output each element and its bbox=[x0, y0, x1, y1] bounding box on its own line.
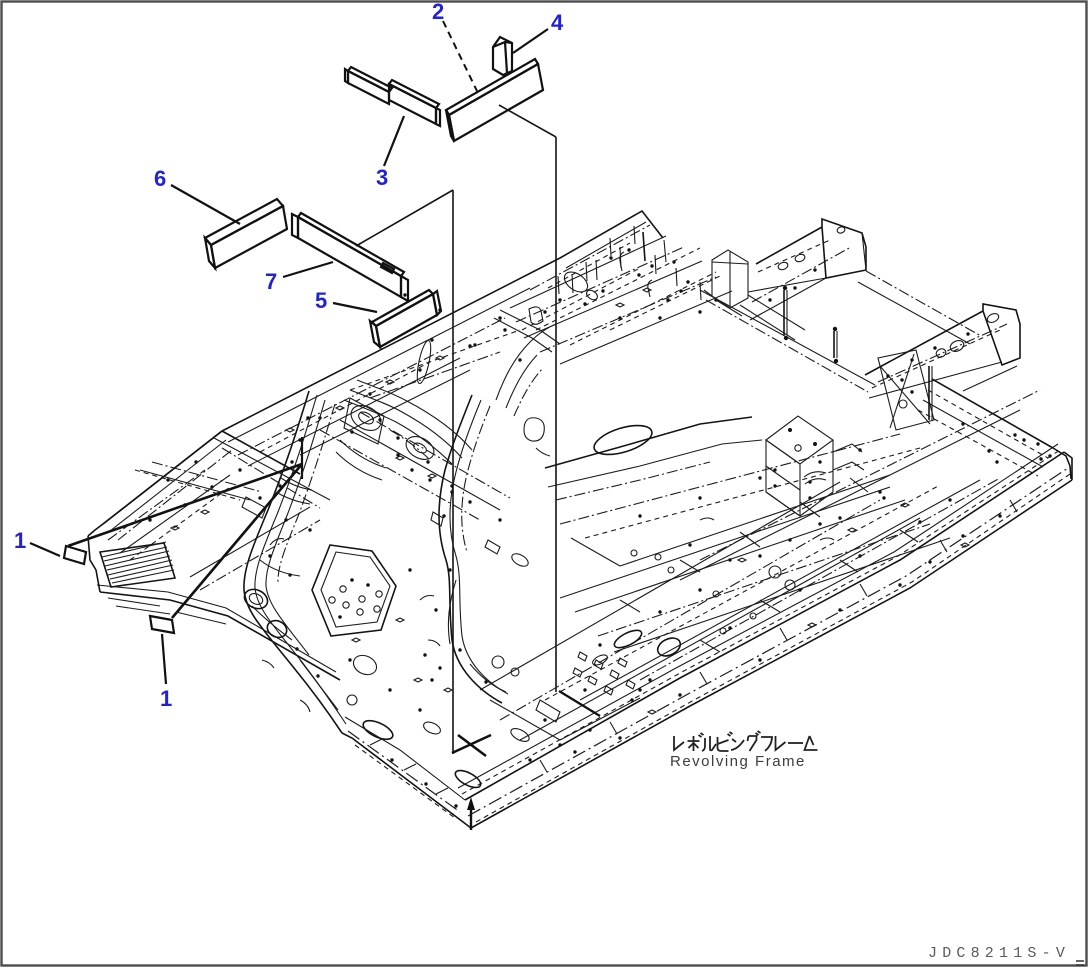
svg-text:1: 1 bbox=[160, 686, 172, 711]
svg-text:2: 2 bbox=[432, 0, 444, 24]
svg-text:5: 5 bbox=[315, 288, 327, 313]
svg-text:Revolving Frame: Revolving Frame bbox=[670, 753, 806, 770]
svg-text:4: 4 bbox=[551, 10, 564, 35]
svg-text:3: 3 bbox=[376, 165, 388, 190]
svg-text:6: 6 bbox=[154, 166, 166, 191]
svg-text:1: 1 bbox=[14, 528, 26, 553]
svg-text:7: 7 bbox=[265, 269, 277, 294]
svg-text:JDC8211S-V: JDC8211S-V bbox=[928, 945, 1070, 962]
